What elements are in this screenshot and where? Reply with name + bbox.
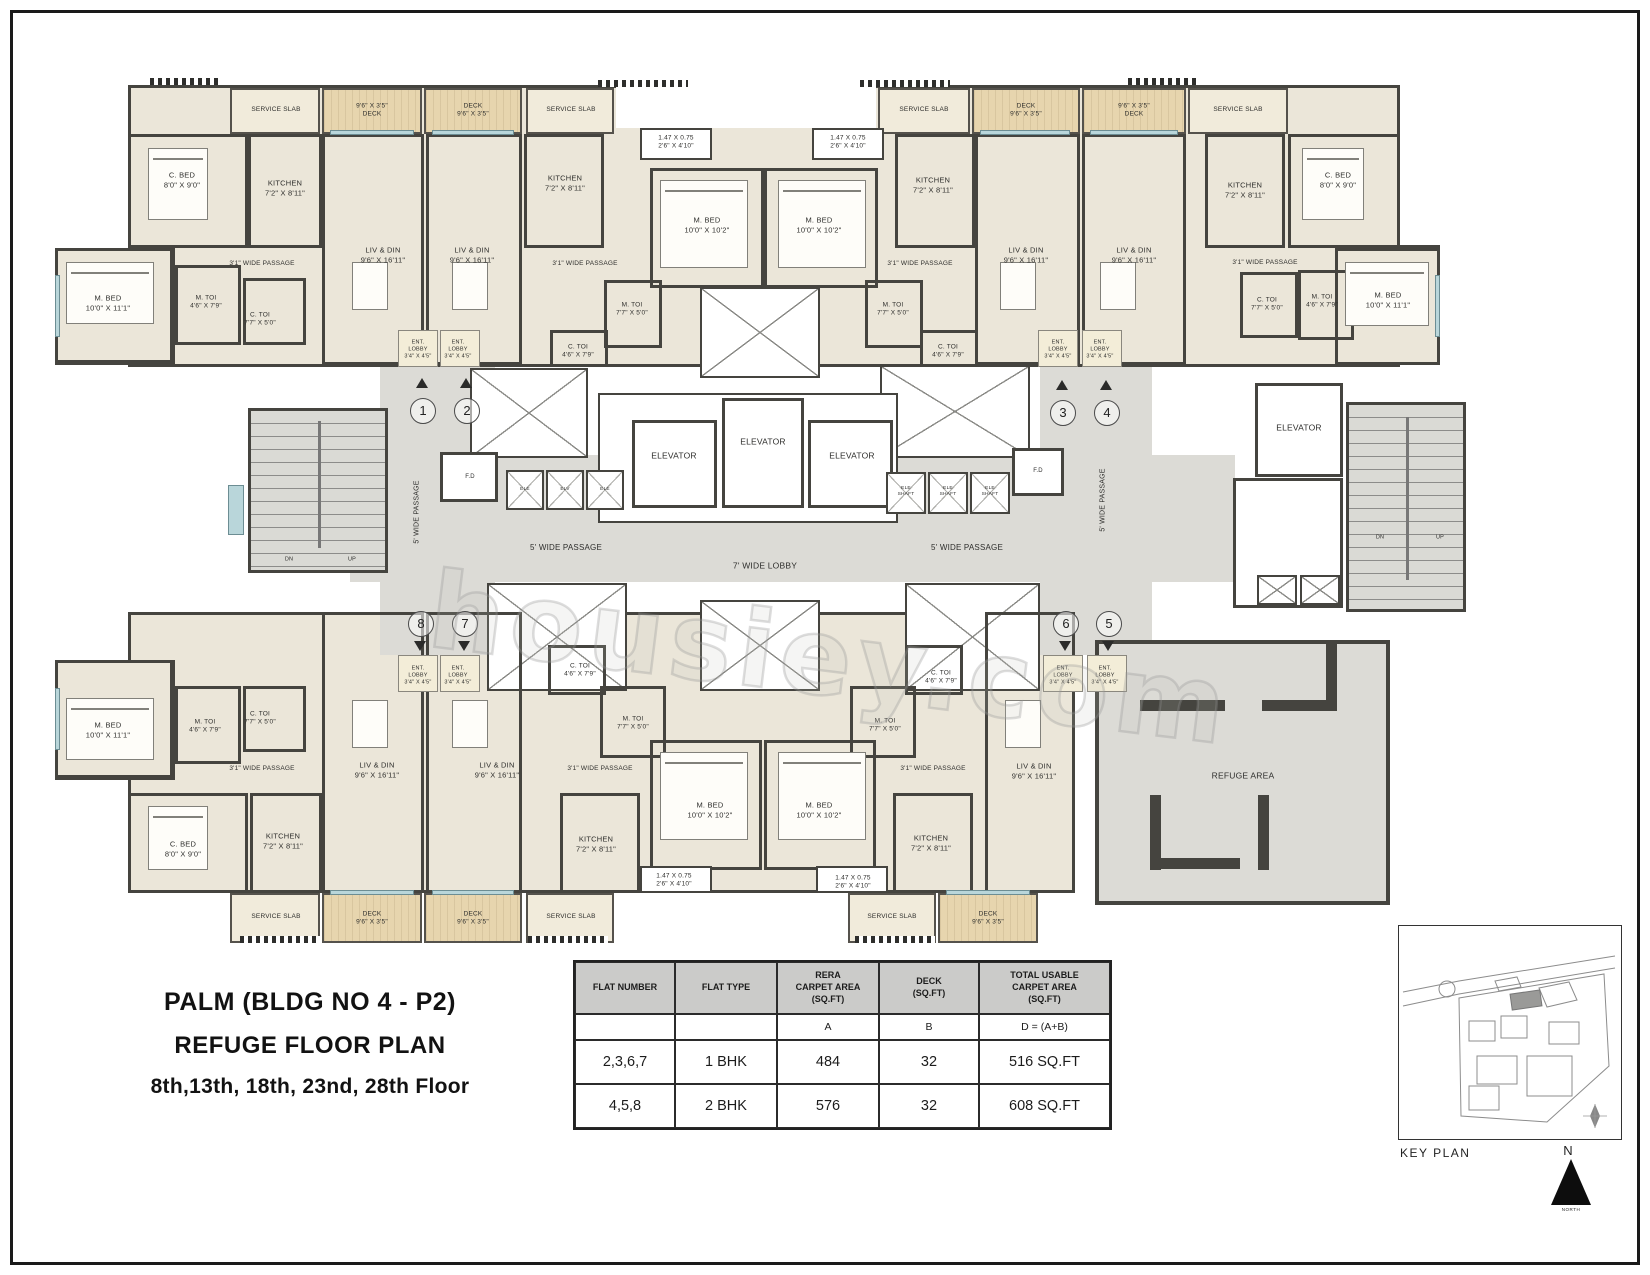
- rlinew-54: [808, 420, 893, 508]
- table-subheader-0: [575, 1014, 675, 1040]
- cut-5: [616, 85, 876, 128]
- north-caption: NORTH: [1546, 1207, 1596, 1212]
- win-106: [980, 130, 1070, 135]
- plan-label-5: DECK 9'6" X 3'5": [1010, 103, 1042, 120]
- plan-label-81: KITCHEN 7'2" X 8'11": [911, 833, 951, 853]
- plan-label-68: C. TOI 7'7" X 5'0": [244, 711, 276, 728]
- plan-label-64: ENT. LOBBY 3'4" X 4'5": [1091, 665, 1118, 686]
- bed-131: [778, 752, 866, 840]
- table-header-flat-number: FLAT NUMBER: [575, 962, 675, 1014]
- plan-label-38: ENT. LOBBY 3'4" X 4'5": [1044, 339, 1071, 360]
- hatch-120: [528, 936, 608, 943]
- plan-label-29: M. TOI 7'7" X 5'0": [616, 302, 648, 319]
- plan-label-56: 5' WIDE PASSAGE: [1098, 468, 1107, 531]
- plan-label-78: C. BED 8'0" X 9'0": [165, 839, 201, 859]
- flat-marker-arrow-2-icon: [460, 378, 472, 388]
- plan-label-87: SERVICE SLAB: [251, 913, 300, 921]
- wall-102: [1150, 858, 1240, 869]
- plan-label-55: 5' WIDE PASSAGE: [412, 480, 421, 543]
- flat-area-table: FLAT NUMBER FLAT TYPE RERA CARPET AREA (…: [573, 960, 1112, 1130]
- win-112: [1435, 275, 1440, 337]
- plan-label-23: 3'1" WIDE PASSAGE: [552, 260, 617, 268]
- flat-marker-5: 5: [1096, 611, 1122, 637]
- plan-label-3: SERVICE SLAB: [546, 106, 595, 114]
- plan-label-11: KITCHEN 7'2" X 8'11": [265, 178, 305, 198]
- wall-99: [1262, 700, 1332, 711]
- plan-label-13: KITCHEN 7'2" X 8'11": [913, 175, 953, 195]
- plan-label-22: 3'1" WIDE PASSAGE: [229, 260, 294, 268]
- flat-marker-arrow-8-icon: [414, 641, 426, 651]
- plan-label-25: 3'1" WIDE PASSAGE: [1232, 259, 1297, 267]
- flat-marker-arrow-6-icon: [1059, 641, 1071, 651]
- xbox-66: [1300, 575, 1340, 605]
- plan-label-43: ELEVATOR: [1276, 422, 1322, 433]
- plan-label-34: M. TOI 4'6" X 7'9": [1306, 294, 1338, 311]
- table-row1-rera-area: 484: [777, 1040, 879, 1084]
- plan-label-15: C. BED 8'0" X 9'0": [1320, 170, 1356, 190]
- stair-9: [248, 408, 388, 573]
- plan-label-92: DECK 9'6" X 3'5": [972, 911, 1004, 928]
- plan-label-16: M. BED 10'0" X 10'2": [685, 215, 730, 235]
- win-108: [330, 890, 414, 895]
- rlinew-52: [632, 420, 717, 508]
- win-113: [55, 688, 60, 750]
- plan-label-89: DECK 9'6" X 3'5": [457, 911, 489, 928]
- table-subheader-a: A: [777, 1014, 879, 1040]
- plan-label-90: SERVICE SLAB: [546, 913, 595, 921]
- plan-label-41: ELEVATOR: [740, 436, 786, 447]
- plan-label-21: LIV & DIN 9'6" X 16'11": [1112, 245, 1156, 265]
- table-row1-total: 516 SQ.FT: [979, 1040, 1110, 1084]
- title-line-2: REFUGE FLOOR PLAN: [85, 1032, 535, 1060]
- plan-label-1: 9'6" X 3'5" DECK: [356, 103, 388, 120]
- flat-marker-8: 8: [408, 611, 434, 637]
- win-104: [330, 130, 414, 135]
- furn-138: [1005, 700, 1041, 748]
- plan-label-53: 7' WIDE LOBBY: [733, 560, 797, 571]
- stair-10: [1346, 402, 1466, 612]
- plan-label-62: ENT. LOBBY 3'4" X 4'5": [444, 665, 471, 686]
- plan-label-8: 1.47 X 0.75 2'6" X 4'10": [658, 135, 694, 152]
- win-105: [432, 130, 514, 135]
- plan-label-12: KITCHEN 7'2" X 8'11": [545, 173, 585, 193]
- table-row2-rera-area: 576: [777, 1084, 879, 1128]
- wall-103: [1258, 795, 1269, 870]
- plan-label-19: LIV & DIN 9'6" X 16'11": [450, 245, 494, 265]
- plan-label-35: M. BED 10'0" X 11'1": [1366, 290, 1410, 310]
- plan-label-44: ELE: [520, 487, 530, 493]
- north-arrow-icon: [1551, 1159, 1591, 1205]
- plan-label-66: M. TOI 7'7" X 5'0": [617, 716, 649, 733]
- table-subheader-d: D = (A+B): [979, 1014, 1110, 1040]
- plan-label-83: M. BED 10'0" X 10'2": [797, 800, 842, 820]
- flat-marker-6: 6: [1053, 611, 1079, 637]
- table-subheader-b: B: [879, 1014, 979, 1040]
- furn-136: [352, 700, 388, 748]
- plan-label-76: M. TOI 7'7" X 5'0": [869, 718, 901, 735]
- plan-label-46: ELE: [600, 487, 610, 493]
- plan-label-14: KITCHEN 7'2" X 8'11": [1225, 180, 1265, 200]
- plan-label-69: M. BED 10'0" X 11'1": [86, 720, 130, 740]
- xbox-69: [700, 600, 820, 691]
- plan-label-86: REFUGE AREA: [1212, 770, 1275, 781]
- plan-label-51: F.D: [1033, 468, 1043, 476]
- key-plan-label: KEY PLAN: [1400, 1146, 1470, 1160]
- plan-label-84: 1.47 X 0.75 2'6" X 4'10": [656, 873, 692, 890]
- hatch-117: [860, 80, 950, 87]
- title-line-3: 8th,13th, 18th, 23nd, 28th Floor: [85, 1075, 535, 1099]
- plan-label-73: LIV & DIN 9'6" X 16'11": [355, 760, 399, 780]
- plan-label-2: DECK 9'6" X 3'5": [457, 103, 489, 120]
- plan-label-79: KITCHEN 7'2" X 8'11": [263, 831, 303, 851]
- win-114: [228, 485, 244, 535]
- key-plan-map: [1399, 926, 1621, 1139]
- title-line-1: PALM (BLDG NO 4 - P2): [85, 988, 535, 1017]
- drawing-sheet: SERVICE SLAB9'6" X 3'5" DECKDECK 9'6" X …: [0, 0, 1650, 1275]
- flat-marker-arrow-4-icon: [1100, 380, 1112, 390]
- plan-label-37: ENT. LOBBY 3'4" X 4'5": [444, 339, 471, 360]
- table-row2-flat-type: 2 BHK: [675, 1084, 777, 1128]
- plan-label-20: LIV & DIN 9'6" X 16'11": [1004, 245, 1048, 265]
- plan-label-50: F.D: [465, 474, 475, 482]
- plan-label-88: DECK 9'6" X 3'5": [356, 911, 388, 928]
- flat-marker-4: 4: [1094, 400, 1120, 426]
- plan-label-63: ENT. LOBBY 3'4" X 4'5": [1049, 665, 1076, 686]
- plan-label-33: C. TOI 7'7" X 5'0": [1251, 297, 1283, 314]
- table-row1-deck: 32: [879, 1040, 979, 1084]
- rlinew-53: [722, 398, 804, 508]
- win-110: [946, 890, 1030, 895]
- table-row1-flat-type: 1 BHK: [675, 1040, 777, 1084]
- plan-label-49: ELE SHAFT: [982, 486, 999, 498]
- flat-marker-2: 2: [454, 398, 480, 424]
- plan-label-28: C. TOI 7'7" X 5'0": [244, 312, 276, 329]
- furn-132: [352, 262, 388, 310]
- plan-label-4: SERVICE SLAB: [899, 106, 948, 114]
- plan-label-61: ENT. LOBBY 3'4" X 4'5": [404, 665, 431, 686]
- title-block: PALM (BLDG NO 4 - P2) REFUGE FLOOR PLAN …: [85, 988, 535, 1099]
- plan-label-31: M. TOI 7'7" X 5'0": [877, 302, 909, 319]
- plan-label-75: LIV & DIN 9'6" X 16'11": [1012, 761, 1056, 781]
- plan-label-9: 1.47 X 0.75 2'6" X 4'10": [830, 135, 866, 152]
- plan-label-70: 3'1" WIDE PASSAGE: [229, 765, 294, 773]
- plan-label-52: 5' WIDE PASSAGE: [530, 543, 602, 553]
- wall-98: [1140, 700, 1225, 711]
- xbox-49: [880, 365, 1030, 458]
- plan-label-6: 9'6" X 3'5" DECK: [1118, 103, 1150, 120]
- flat-marker-arrow-7-icon: [458, 641, 470, 651]
- plan-label-36: ENT. LOBBY 3'4" X 4'5": [404, 339, 431, 360]
- plan-label-48: ELE SHAFT: [940, 486, 957, 498]
- win-111: [55, 275, 60, 337]
- plan-label-74: LIV & DIN 9'6" X 16'11": [475, 760, 519, 780]
- flat-marker-arrow-1-icon: [416, 378, 428, 388]
- plan-label-7: SERVICE SLAB: [1213, 106, 1262, 114]
- hatch-116: [598, 80, 688, 87]
- plan-label-24: 3'1" WIDE PASSAGE: [887, 260, 952, 268]
- flat-marker-arrow-5-icon: [1102, 641, 1114, 651]
- plan-label-91: SERVICE SLAB: [867, 913, 916, 921]
- plan-label-10: C. BED 8'0" X 9'0": [164, 170, 200, 190]
- hatch-115: [150, 78, 220, 85]
- flat-marker-1: 1: [410, 398, 436, 424]
- plan-label-27: M. TOI 4'6" X 7'9": [190, 295, 222, 312]
- plan-label-40: ELEVATOR: [651, 450, 697, 461]
- plan-label-26: M. BED 10'0" X 11'1": [86, 293, 130, 313]
- wall-100: [1326, 642, 1337, 711]
- plan-label-65: C. TOI 4'6" X 7'9": [564, 663, 596, 680]
- plan-label-71: 3'1" WIDE PASSAGE: [567, 765, 632, 773]
- xbox-50: [700, 287, 820, 378]
- hatch-121: [855, 936, 935, 943]
- win-109: [432, 890, 514, 895]
- plan-label-0: SERVICE SLAB: [251, 106, 300, 114]
- plan-label-30: C. TOI 4'6" X 7'9": [562, 344, 594, 361]
- plan-label-57: DN: [285, 556, 293, 563]
- hatch-119: [240, 936, 320, 943]
- table-row2-flat-number: 4,5,8: [575, 1084, 675, 1128]
- furn-133: [452, 262, 488, 310]
- plan-label-67: M. TOI 4'6" X 7'9": [189, 719, 221, 736]
- xbox-48: [470, 368, 588, 458]
- table-header-total-usable: TOTAL USABLE CARPET AREA (SQ.FT): [979, 962, 1110, 1014]
- plan-label-60: UP: [1436, 534, 1444, 541]
- table-header-deck: DECK (SQ.FT): [879, 962, 979, 1014]
- plan-label-42: ELEVATOR: [829, 450, 875, 461]
- hatch-118: [1128, 78, 1198, 85]
- table-header-rera-carpet-area: RERA CARPET AREA (SQ.FT): [777, 962, 879, 1014]
- furn-135: [1100, 262, 1136, 310]
- furn-134: [1000, 262, 1036, 310]
- flat-marker-3: 3: [1050, 400, 1076, 426]
- table-header-flat-type: FLAT TYPE: [675, 962, 777, 1014]
- bed-129: [148, 806, 208, 870]
- plan-label-39: ENT. LOBBY 3'4" X 4'5": [1086, 339, 1113, 360]
- furn-137: [452, 700, 488, 748]
- plan-label-80: KITCHEN 7'2" X 8'11": [576, 834, 616, 854]
- table-row2-deck: 32: [879, 1084, 979, 1128]
- plan-label-54: 5' WIDE PASSAGE: [931, 543, 1003, 553]
- table-subheader-1: [675, 1014, 777, 1040]
- win-107: [1090, 130, 1178, 135]
- plan-label-77: C. TOI 4'6" X 7'9": [925, 670, 957, 687]
- plan-label-45: ELV: [560, 487, 569, 493]
- plan-label-82: M. BED 10'0" X 10'2": [688, 800, 733, 820]
- flat-marker-7: 7: [452, 611, 478, 637]
- xbox-65: [1257, 575, 1297, 605]
- plan-label-47: ELE SHAFT: [898, 486, 915, 498]
- plan-label-72: 3'1" WIDE PASSAGE: [900, 765, 965, 773]
- north-label: N: [1553, 1143, 1583, 1158]
- key-plan-box: [1398, 925, 1622, 1140]
- table-row2-total: 608 SQ.FT: [979, 1084, 1110, 1128]
- table-row1-flat-number: 2,3,6,7: [575, 1040, 675, 1084]
- plan-label-58: UP: [348, 556, 356, 563]
- plan-label-32: C. TOI 4'6" X 7'9": [932, 344, 964, 361]
- plan-label-18: LIV & DIN 9'6" X 16'11": [361, 245, 405, 265]
- plan-label-59: DN: [1376, 534, 1384, 541]
- bed-130: [660, 752, 748, 840]
- flat-marker-arrow-3-icon: [1056, 380, 1068, 390]
- plan-label-85: 1.47 X 0.75 2'6" X 4'10": [835, 875, 871, 892]
- plan-label-17: M. BED 10'0" X 10'2": [797, 215, 842, 235]
